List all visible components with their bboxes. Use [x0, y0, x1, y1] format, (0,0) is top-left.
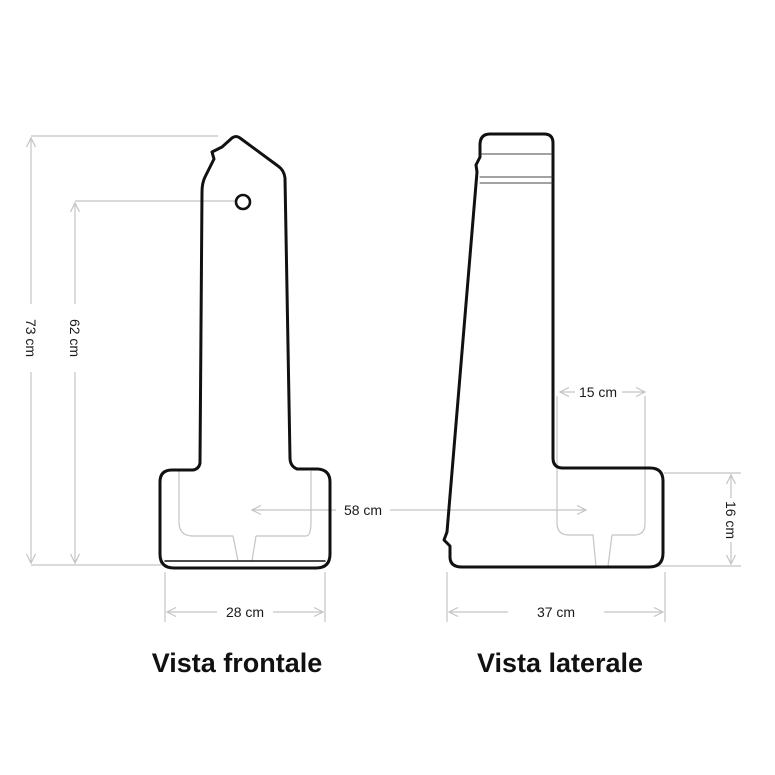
view-titles: Vista frontale Vista laterale	[152, 648, 643, 678]
dim-label-16cm: 16 cm	[723, 501, 739, 539]
side-view-title: Vista laterale	[477, 648, 643, 678]
dim-label-37cm: 37 cm	[537, 604, 575, 620]
dimension-diagram: 73 cm 62 cm 28 cm 58 cm 15 cm 16 cm 37 c…	[0, 0, 775, 775]
dim-label-28cm: 28 cm	[226, 604, 264, 620]
dim-label-15cm: 15 cm	[579, 384, 617, 400]
dim-label-73cm: 73 cm	[23, 319, 39, 357]
front-view-title: Vista frontale	[152, 648, 323, 678]
dim-label-58cm: 58 cm	[344, 502, 382, 518]
dim-label-62cm: 62 cm	[67, 319, 83, 357]
mounting-hole	[236, 195, 250, 209]
technical-drawing-page: 73 cm 62 cm 28 cm 58 cm 15 cm 16 cm 37 c…	[0, 0, 775, 775]
